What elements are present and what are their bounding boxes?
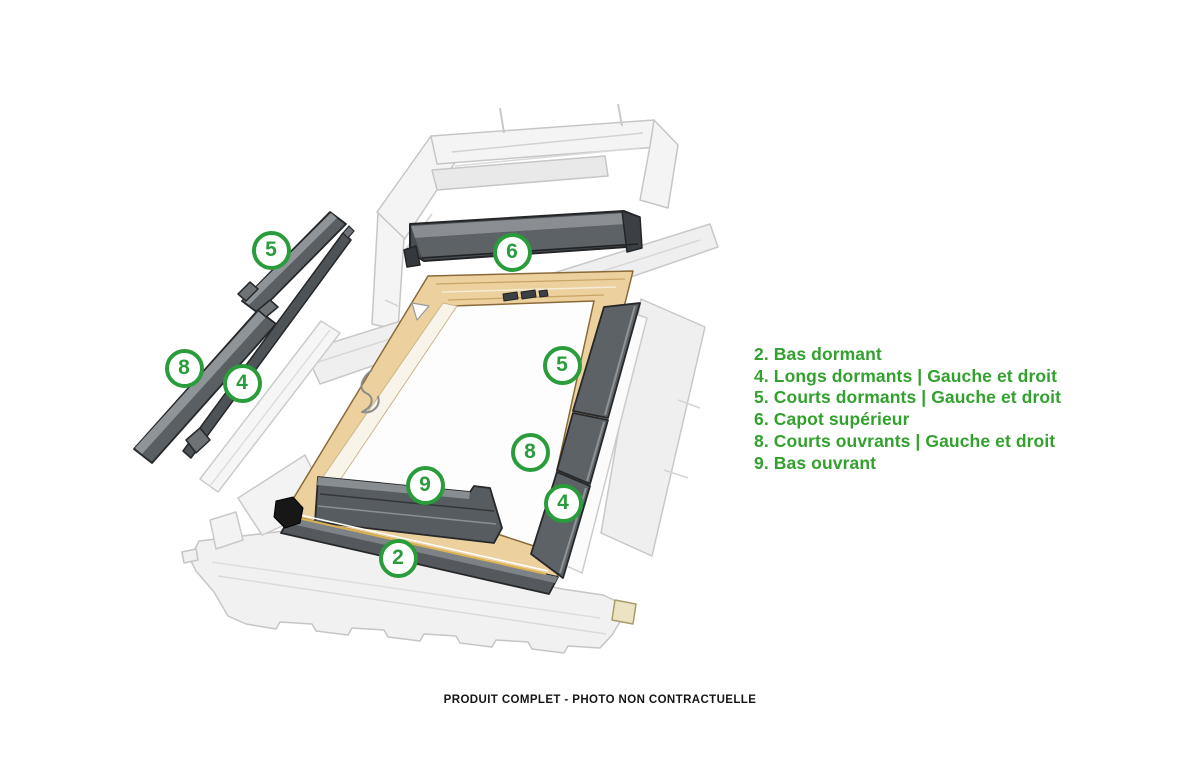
badge-5-right: 5 (543, 346, 582, 385)
legend-item-label: Capot supérieur (774, 409, 910, 431)
badge-number: 5 (556, 354, 568, 375)
legend-item-number: 8. (754, 431, 769, 453)
badge-4-left: 4 (223, 364, 262, 403)
badge-5-left: 5 (252, 231, 291, 270)
badge-number: 9 (419, 474, 431, 495)
badge-8-right: 8 (511, 433, 550, 472)
legend-item-label: Bas dormant (774, 344, 882, 366)
badge-number: 5 (265, 239, 277, 260)
legend-item: 9.Bas ouvrant (754, 453, 1061, 475)
badge-number: 4 (557, 492, 569, 513)
badge-number: 6 (506, 241, 518, 262)
legend-item: 8.Courts ouvrants | Gauche et droit (754, 431, 1061, 453)
badge-6-top: 6 (493, 233, 532, 272)
legend-item-number: 2. (754, 344, 769, 366)
legend-item-number: 9. (754, 453, 769, 475)
legend-item-label: Courts dormants | Gauche et droit (774, 387, 1061, 409)
badge-2-bottom: 2 (379, 539, 418, 578)
legend-item-label: Bas ouvrant (774, 453, 876, 475)
legend-item: 2.Bas dormant (754, 344, 1061, 366)
badge-number: 8 (524, 441, 536, 462)
badge-4-right: 4 (544, 484, 583, 523)
parts-legend: 2.Bas dormant4.Longs dormants | Gauche e… (754, 344, 1061, 474)
badge-number: 8 (178, 357, 190, 378)
product-diagram-page: 584658492 2.Bas dormant4.Longs dormants … (0, 0, 1200, 780)
legend-item-number: 6. (754, 409, 769, 431)
caption: PRODUIT COMPLET - PHOTO NON CONTRACTUELL… (0, 694, 1200, 706)
badge-number: 2 (392, 547, 404, 568)
badge-number: 4 (236, 372, 248, 393)
legend-item: 6.Capot supérieur (754, 409, 1061, 431)
badge-9-bottom: 9 (406, 466, 445, 505)
legend-item: 5.Courts dormants | Gauche et droit (754, 387, 1061, 409)
legend-item-label: Courts ouvrants | Gauche et droit (774, 431, 1055, 453)
badge-8-left: 8 (165, 349, 204, 388)
legend-item-number: 4. (754, 366, 769, 388)
legend-item-number: 5. (754, 387, 769, 409)
legend-item-label: Longs dormants | Gauche et droit (774, 366, 1057, 388)
legend-item: 4.Longs dormants | Gauche et droit (754, 366, 1061, 388)
